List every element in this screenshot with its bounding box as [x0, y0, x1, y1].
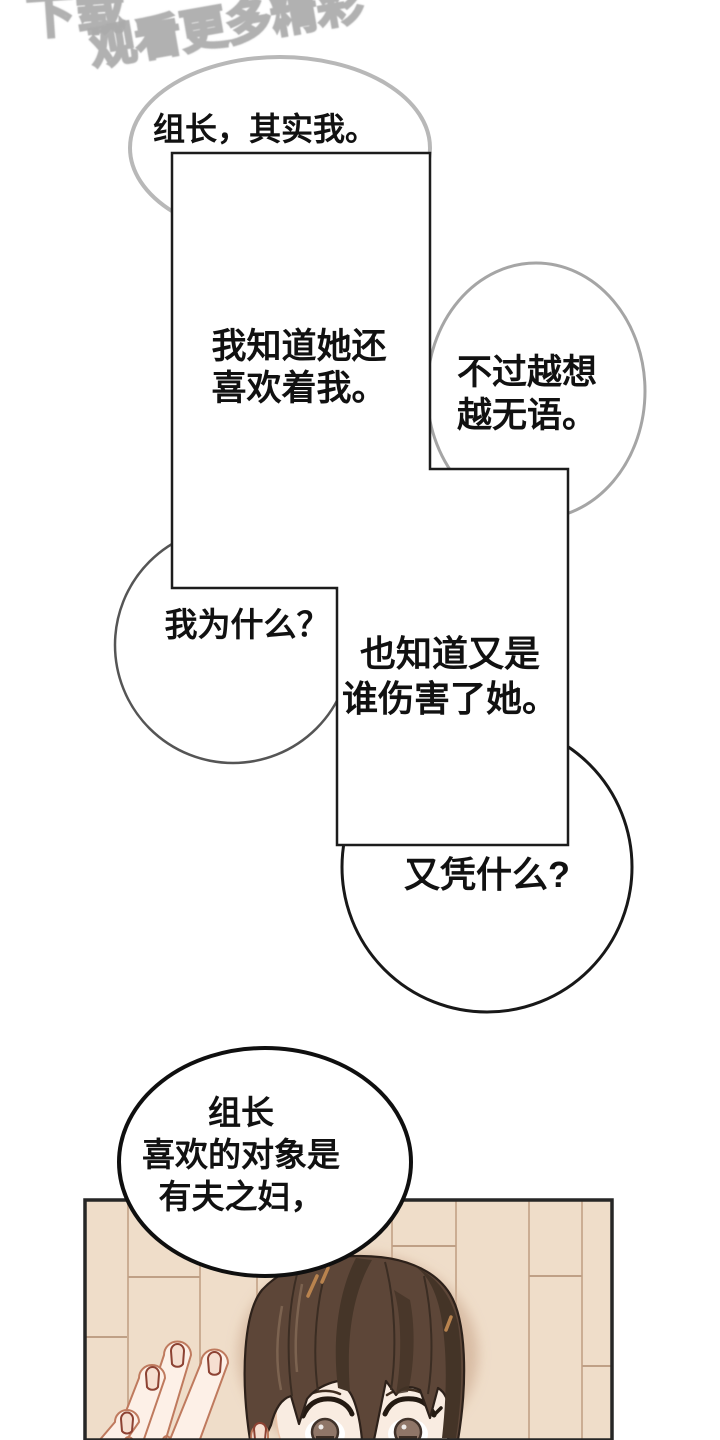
speech-question-circle: 又凭什么?: [404, 846, 570, 898]
speech-right-circle: 不过越想 越无语。: [457, 351, 597, 437]
speech-line: 我知道她还: [211, 326, 386, 368]
comic-page: 下载 观看更多精彩: [0, 0, 720, 1440]
speech-line: 组长: [142, 1092, 340, 1134]
speech-panel-b: 也知道又是 谁伤害了她。: [342, 631, 558, 721]
speech-line: 喜欢的对象是: [142, 1134, 340, 1176]
speech-line: 也知道又是: [342, 631, 558, 676]
speech-line: 谁伤害了她。: [342, 676, 558, 721]
speech-line: 喜欢着我。: [211, 368, 386, 410]
speech-bottom-circle: 组长 喜欢的对象是 有夫之妇，: [142, 1092, 340, 1218]
speech-left-circle: 我为什么？: [165, 598, 330, 646]
speech-top-circle: 组长，其实我。: [153, 104, 377, 150]
speech-line: 越无语。: [457, 394, 597, 437]
speech-line: 不过越想: [457, 351, 597, 394]
speech-panel-a: 我知道她还 喜欢着我。: [211, 326, 386, 410]
speech-line: 有夫之妇，: [142, 1176, 340, 1218]
